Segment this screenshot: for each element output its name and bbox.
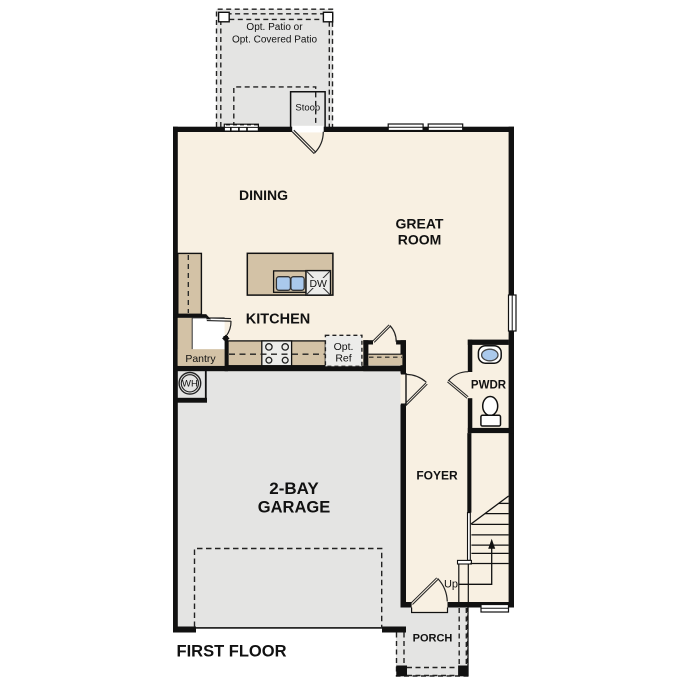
svg-text:DINING: DINING <box>239 187 288 203</box>
svg-text:KITCHEN: KITCHEN <box>246 311 310 327</box>
svg-text:WH: WH <box>182 379 198 390</box>
svg-text:GREAT: GREAT <box>396 215 444 231</box>
svg-text:FIRST FLOOR: FIRST FLOOR <box>177 642 287 660</box>
svg-text:Opt. Covered Patio: Opt. Covered Patio <box>232 35 317 46</box>
svg-text:Ref: Ref <box>335 353 351 365</box>
svg-text:GARAGE: GARAGE <box>258 498 330 516</box>
svg-text:DW: DW <box>309 278 327 290</box>
svg-text:Up: Up <box>444 579 458 591</box>
svg-text:ROOM: ROOM <box>398 232 442 248</box>
svg-text:PORCH: PORCH <box>413 633 453 645</box>
svg-text:Pantry: Pantry <box>185 353 216 365</box>
svg-text:FOYER: FOYER <box>416 469 458 483</box>
svg-text:Opt.: Opt. <box>334 341 354 353</box>
svg-text:Stoop: Stoop <box>295 103 320 114</box>
svg-text:Opt. Patio or: Opt. Patio or <box>246 22 303 33</box>
svg-text:PWDR: PWDR <box>471 379 507 391</box>
svg-text:2-BAY: 2-BAY <box>269 479 319 498</box>
